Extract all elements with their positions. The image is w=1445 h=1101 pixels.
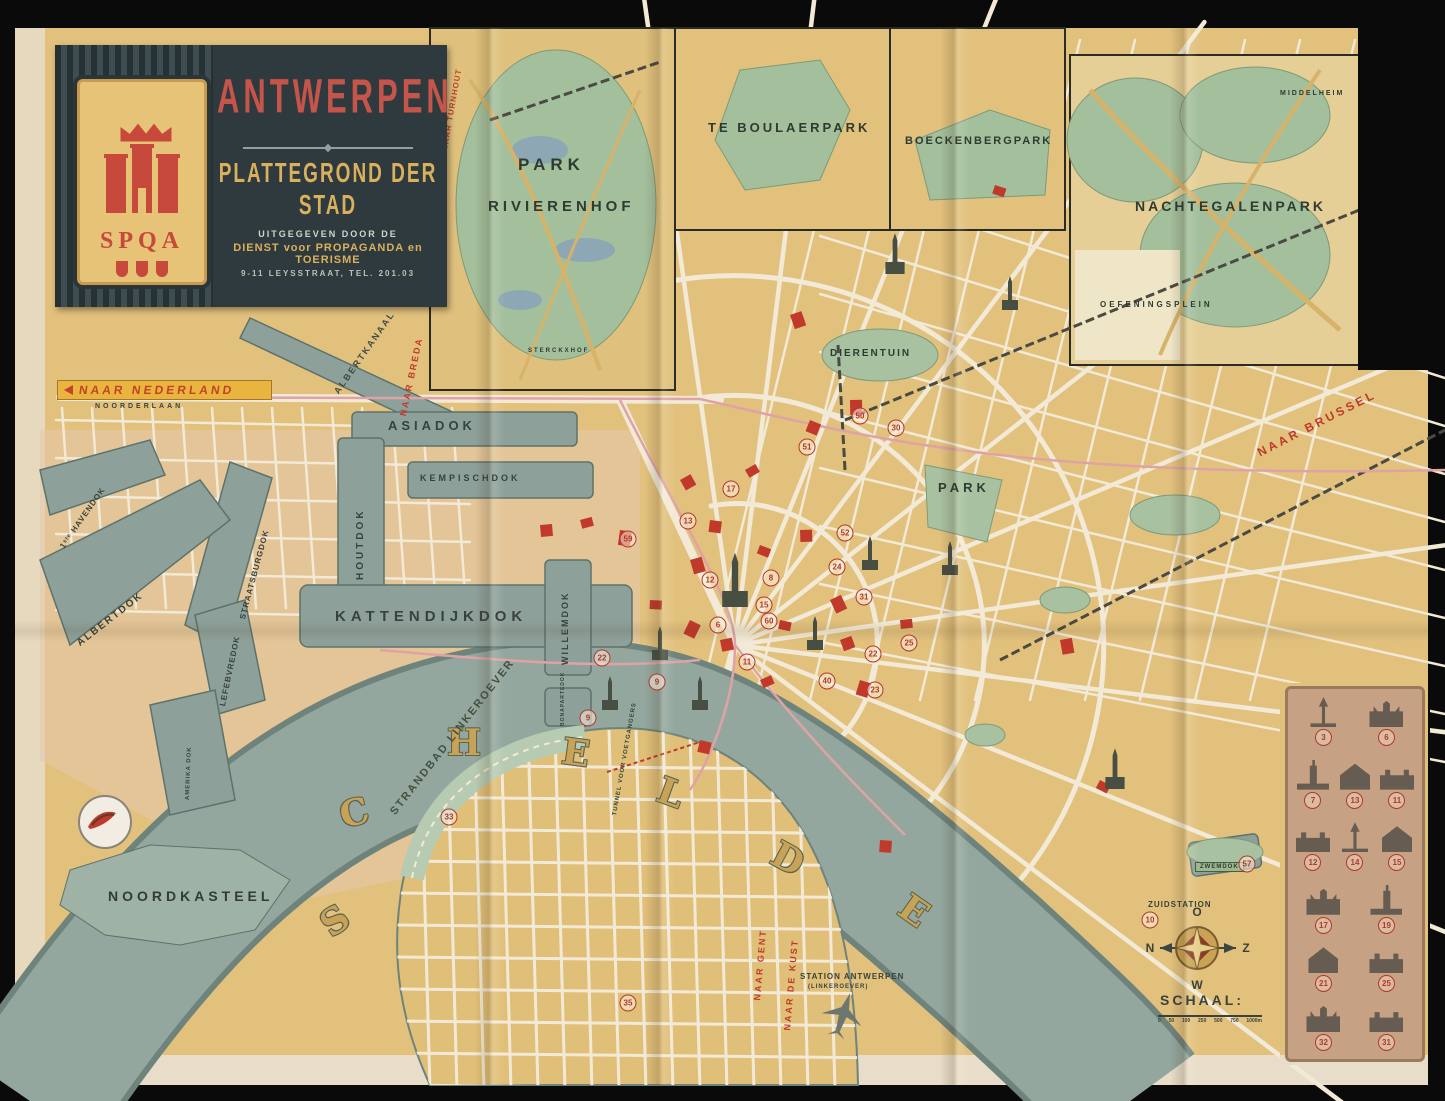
- map-marker-30: 30: [888, 420, 905, 437]
- label-sterckxhof: STERCKXHOF: [528, 348, 589, 354]
- spqa-emblem: SPQA: [73, 75, 211, 289]
- compass-n: N: [1146, 941, 1155, 955]
- legend-item-31: 31: [1358, 1006, 1416, 1051]
- castle-crest-icon: [92, 118, 192, 226]
- compass-z: Z: [1242, 941, 1249, 955]
- legend-item-6: 6: [1358, 697, 1416, 746]
- building-icon: [1306, 1006, 1340, 1032]
- legend-number: 12: [1304, 854, 1321, 871]
- scale-tick: 500: [1214, 1018, 1222, 1024]
- building-icon: [1369, 1010, 1403, 1032]
- label-bonapartedok: BONAPARTEDOK: [560, 672, 566, 726]
- label-noordkasteel: NOORDKASTEEL: [108, 888, 273, 904]
- label-oefeningsplein: OEFENINGSPLEIN: [1100, 300, 1213, 309]
- map-marker-57: 57: [1239, 856, 1256, 873]
- title-panel: SPQA ANTWERPEN PLATTEGROND DER STAD UITG…: [55, 45, 447, 307]
- compass-o: O: [1192, 905, 1201, 919]
- map-marker-59: 59: [620, 531, 637, 548]
- legend-item-13: 13: [1336, 760, 1374, 809]
- map-marker-31: 31: [856, 589, 873, 606]
- label-kempischdok: KEMPISCHDOK: [420, 473, 521, 483]
- label-te-boulaerpark: TE BOULAERPARK: [708, 120, 870, 135]
- label-boeckenbergpark: BOECKENBERGPARK: [905, 135, 1052, 147]
- issued-line2: DIENST voor PROPAGANDA en TOERISME: [217, 242, 439, 266]
- legend-number: 25: [1378, 975, 1395, 992]
- legend-item-19: 19: [1358, 885, 1416, 934]
- map-marker-52: 52: [837, 525, 854, 542]
- map-marker-35: 35: [620, 995, 637, 1012]
- photo-background: SPQA ANTWERPEN PLATTEGROND DER STAD UITG…: [0, 0, 1445, 1101]
- legend-item-7: 7: [1294, 760, 1332, 809]
- title-divider: [243, 147, 413, 149]
- label-kattendijkdok: KATTENDIJKDOK: [335, 608, 527, 625]
- legend-number: 14: [1346, 854, 1363, 871]
- left-arrow-icon: [64, 385, 73, 395]
- legend-number: 32: [1315, 1034, 1332, 1051]
- banner-text: NAAR NEDERLAND: [78, 383, 235, 397]
- building-icon: [1369, 701, 1403, 727]
- banner-naar-nederland: NAAR NEDERLAND: [57, 380, 272, 400]
- emblem-motto: SPQA: [100, 228, 184, 255]
- building-icon: [1342, 822, 1368, 852]
- scale-ticks: 0501002505007501000m: [1158, 1018, 1262, 1024]
- scale-tick: 1000m: [1246, 1018, 1262, 1024]
- legend-item-15: 15: [1378, 822, 1416, 871]
- building-icon: [1296, 830, 1330, 852]
- scale-label: SCHAAL:: [1160, 992, 1244, 1008]
- legend-number: 13: [1346, 792, 1363, 809]
- legend-number: 17: [1315, 917, 1332, 934]
- legend-item-3: 3: [1295, 697, 1353, 746]
- scale-tick: 100: [1182, 1018, 1190, 1024]
- map-marker-50: 50: [852, 408, 869, 425]
- label-noorderlaan: NOORDERLAAN: [95, 403, 183, 410]
- airplane-icon: [818, 990, 868, 1040]
- map-marker-13: 13: [680, 513, 697, 530]
- map-marker-15: 15: [756, 597, 773, 614]
- scale-tick: 0: [1158, 1018, 1161, 1024]
- scale-tick: 250: [1198, 1018, 1206, 1024]
- legend-item-25: 25: [1358, 947, 1416, 992]
- map-marker-11: 11: [739, 654, 756, 671]
- issued-line1: UITGEGEVEN DOOR DE: [217, 229, 439, 239]
- emblem-shields: [116, 261, 168, 277]
- building-icon: [1306, 889, 1340, 915]
- map-marker-33: 33: [441, 809, 458, 826]
- map-marker-9: 9: [580, 710, 597, 727]
- label-willemdok: WILLEMDOK: [560, 592, 570, 666]
- legend-panel: 3671311121415171921253231: [1285, 686, 1425, 1062]
- legend-item-14: 14: [1336, 822, 1374, 871]
- building-icon: [1380, 768, 1414, 790]
- label-park-rivierenhof-2: RIVIERENHOF: [488, 198, 635, 215]
- label-dierentuin: DIERENTUIN: [830, 348, 911, 359]
- building-icon: [1297, 760, 1329, 790]
- label-zwemdok: ZWEMDOK: [1195, 862, 1244, 872]
- legend-number: 6: [1378, 729, 1395, 746]
- map-marker-23: 23: [867, 682, 884, 699]
- building-icon: [1340, 764, 1370, 790]
- legend-item-21: 21: [1295, 947, 1353, 992]
- map-title: ANTWERPEN: [217, 69, 439, 125]
- map-subtitle: PLATTEGROND DER STAD: [217, 159, 439, 223]
- building-icon: [1308, 947, 1338, 973]
- river-letter-e1: E: [559, 730, 592, 775]
- label-asiadok: ASIADOK: [388, 418, 476, 433]
- building-icon: [1310, 697, 1336, 727]
- map-marker-22: 22: [594, 650, 611, 667]
- legend-item-12: 12: [1294, 822, 1332, 871]
- issued-line3: 9-11 LEYSSTRAAT, TEL. 201.03: [217, 269, 439, 278]
- map-marker-60: 60: [761, 613, 778, 630]
- map-marker-51: 51: [799, 439, 816, 456]
- legend-number: 19: [1378, 917, 1395, 934]
- legend-number: 15: [1388, 854, 1405, 871]
- legend-number: 7: [1304, 792, 1321, 809]
- building-icon: [1369, 951, 1403, 973]
- compass-w: W: [1191, 978, 1202, 992]
- label-nachtegalenpark: NACHTEGALENPARK: [1135, 198, 1326, 214]
- legend-number: 21: [1315, 975, 1332, 992]
- building-icon: [1370, 885, 1402, 915]
- label-station-antwerpen-1: STATION ANTWERPEN: [800, 972, 904, 981]
- scale-tick: 750: [1230, 1018, 1238, 1024]
- legend-item-32: 32: [1295, 1006, 1353, 1051]
- map-marker-10: 10: [1142, 912, 1159, 929]
- map-marker-8: 8: [763, 570, 780, 587]
- scale-bar: 0501002505007501000m: [1158, 1015, 1262, 1024]
- map-marker-25: 25: [901, 635, 918, 652]
- legend-number: 3: [1315, 729, 1332, 746]
- label-park-rivierenhof-1: PARK: [518, 155, 585, 175]
- label-houtdok: HOUTDOK: [355, 508, 366, 580]
- map-marker-6: 6: [710, 617, 727, 634]
- map-marker-40: 40: [819, 673, 836, 690]
- legend-number: 31: [1378, 1034, 1395, 1051]
- map-marker-17: 17: [723, 481, 740, 498]
- legend-number: 11: [1388, 792, 1405, 809]
- map-marker-22: 22: [865, 646, 882, 663]
- label-zuidstation: ZUIDSTATION: [1148, 900, 1212, 909]
- label-stadspark: PARK: [938, 480, 990, 495]
- map-marker-24: 24: [829, 559, 846, 576]
- label-middelheim: MIDDELHEIM: [1280, 90, 1344, 97]
- building-icon: [1382, 826, 1412, 852]
- legend-item-11: 11: [1378, 760, 1416, 809]
- map-marker-12: 12: [702, 572, 719, 589]
- map-marker-9: 9: [649, 674, 666, 691]
- legend-item-17: 17: [1295, 885, 1353, 934]
- city-crest-icon: [78, 795, 132, 849]
- scale-tick: 50: [1169, 1018, 1175, 1024]
